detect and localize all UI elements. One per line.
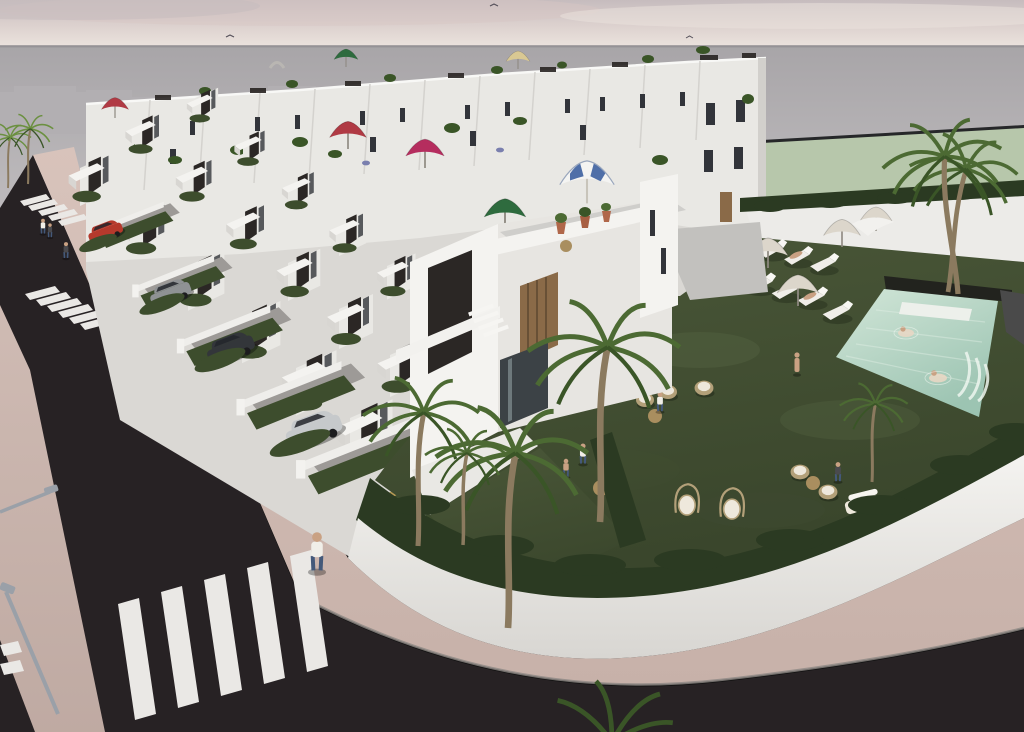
window xyxy=(650,210,655,236)
window xyxy=(661,248,666,274)
wood-door xyxy=(720,192,732,222)
round-table xyxy=(806,476,820,490)
horizon-line xyxy=(0,45,1024,47)
aerial-render xyxy=(0,0,1024,732)
window xyxy=(736,100,745,122)
pot-plant xyxy=(601,203,611,211)
hero-tower xyxy=(640,174,678,318)
wicker-stool xyxy=(560,240,572,252)
window xyxy=(734,147,743,169)
render-stage: Aerial 3D render of a new-build white to… xyxy=(0,0,1024,732)
glass-reflection xyxy=(508,358,512,422)
sky xyxy=(0,0,1024,48)
pot-plant xyxy=(555,213,567,223)
window xyxy=(706,103,715,125)
window xyxy=(704,150,713,172)
pot-plant xyxy=(579,207,591,217)
